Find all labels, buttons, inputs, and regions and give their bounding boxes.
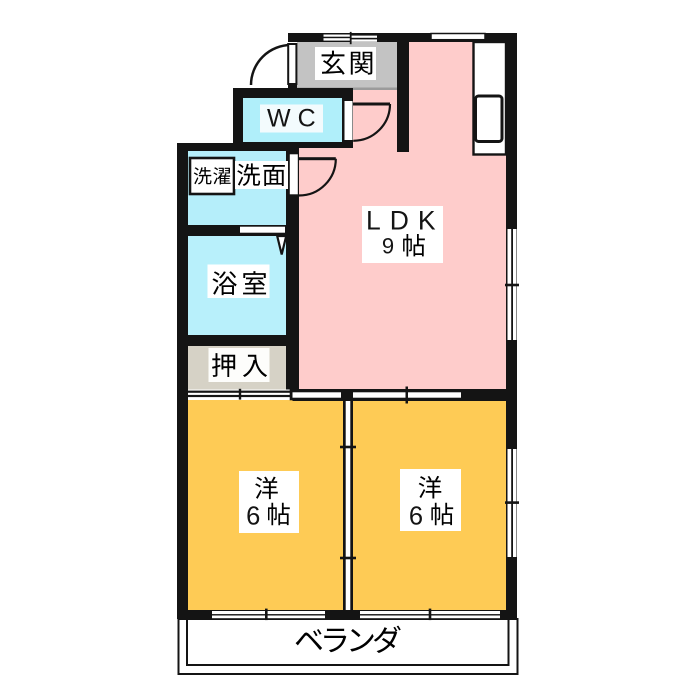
svg-text:LDK: LDK: [366, 206, 445, 236]
svg-text:6: 6: [409, 502, 423, 530]
svg-text:9: 9: [382, 234, 394, 259]
svg-text:6: 6: [246, 502, 260, 530]
svg-text:WC: WC: [267, 105, 323, 133]
